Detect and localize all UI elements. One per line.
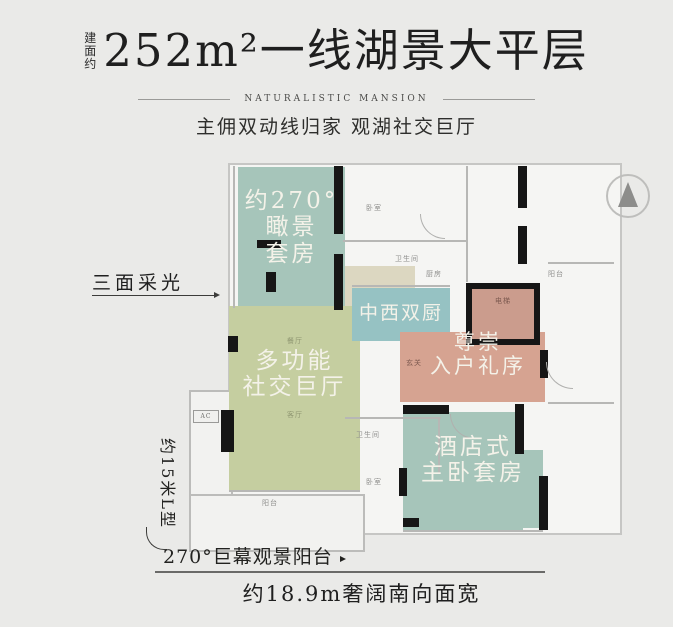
side-length-label: 约15米L型 <box>157 438 181 529</box>
subtitle-rule-right <box>443 99 535 100</box>
partition-line <box>352 285 450 287</box>
room-label-master: 酒店式 主卧套房 <box>403 434 543 487</box>
label-bedroom-top: 卧室 <box>366 203 382 213</box>
callout-three-side-light: 三面采光 <box>92 268 184 295</box>
floorplan-poster: 建面约 252m²一线湖景大平层 NATURALISTIC MANSION 主佣… <box>0 0 673 627</box>
label-balcony-right: 阳台 <box>548 269 564 279</box>
label-foyer: 玄关 <box>406 358 422 368</box>
wall-segment <box>518 166 527 208</box>
hall-line2: 社交巨厅 <box>229 374 360 400</box>
suite-line1: 约270° <box>238 188 345 214</box>
main-title: 252m²一线湖景大平层 <box>103 22 589 80</box>
north-arrow-icon <box>606 174 650 218</box>
page-title: 建面约 252m²一线湖景大平层 <box>0 22 673 80</box>
room-label-entry: 尊崇 入户礼序 <box>408 330 548 378</box>
tagline: 主佣双动线归家 观湖社交巨厅 <box>0 112 673 139</box>
wall-segment <box>518 226 527 264</box>
label-bath-top: 卫生间 <box>395 254 419 264</box>
label-bedroom-bottom: 卧室 <box>366 477 382 487</box>
room-label-kitchen: 中西双厨 <box>352 303 450 325</box>
south-width-label: 约18.9m奢阔南向面宽 <box>0 578 673 608</box>
wall-segment <box>403 405 449 414</box>
kitchen-line1: 中西双厨 <box>352 303 450 325</box>
label-kitchen-small: 厨房 <box>426 269 442 279</box>
partition-line <box>229 490 360 492</box>
partition-line <box>345 417 441 419</box>
balcony-callout: 270°巨幕观景阳台 <box>163 542 333 569</box>
entry-line1: 尊崇 <box>408 330 548 354</box>
partition-line <box>548 402 614 404</box>
subtitle-row: NATURALISTIC MANSION <box>0 94 673 104</box>
master-line2: 主卧套房 <box>403 460 543 486</box>
label-dining: 餐厅 <box>287 336 303 346</box>
room-label-hall: 多功能 社交巨厅 <box>229 348 360 401</box>
label-bath-bottom: 卫生间 <box>356 430 380 440</box>
label-living: 客厅 <box>287 410 303 420</box>
label-elevator: 电梯 <box>466 296 540 306</box>
label-balcony-bottom: 阳台 <box>262 498 278 508</box>
partition-line <box>548 262 614 264</box>
callout-underline <box>92 295 214 296</box>
entry-line2: 入户礼序 <box>408 354 548 378</box>
suite-line3: 套房 <box>238 241 345 267</box>
arrow-icon <box>340 556 346 562</box>
north-needle-icon <box>618 182 638 207</box>
width-dimension-line <box>155 571 545 573</box>
partition-line <box>343 240 467 242</box>
wall-segment <box>266 272 276 292</box>
ac-unit-label: AC <box>193 410 219 423</box>
hall-line1: 多功能 <box>229 348 360 374</box>
window-line <box>233 166 235 308</box>
wall-segment <box>221 410 234 452</box>
partition-line <box>403 530 543 532</box>
area-prefix-label: 建面约 <box>84 32 99 71</box>
subtitle-text: NATURALISTIC MANSION <box>244 94 428 104</box>
wall-segment <box>403 518 419 527</box>
suite-line2: 瞰景 <box>238 214 345 240</box>
partition-line <box>466 166 468 282</box>
room-label-suite: 约270° 瞰景 套房 <box>238 188 345 267</box>
subtitle-rule-left <box>138 99 230 100</box>
arrow-icon <box>214 292 220 298</box>
master-line1: 酒店式 <box>403 434 543 460</box>
